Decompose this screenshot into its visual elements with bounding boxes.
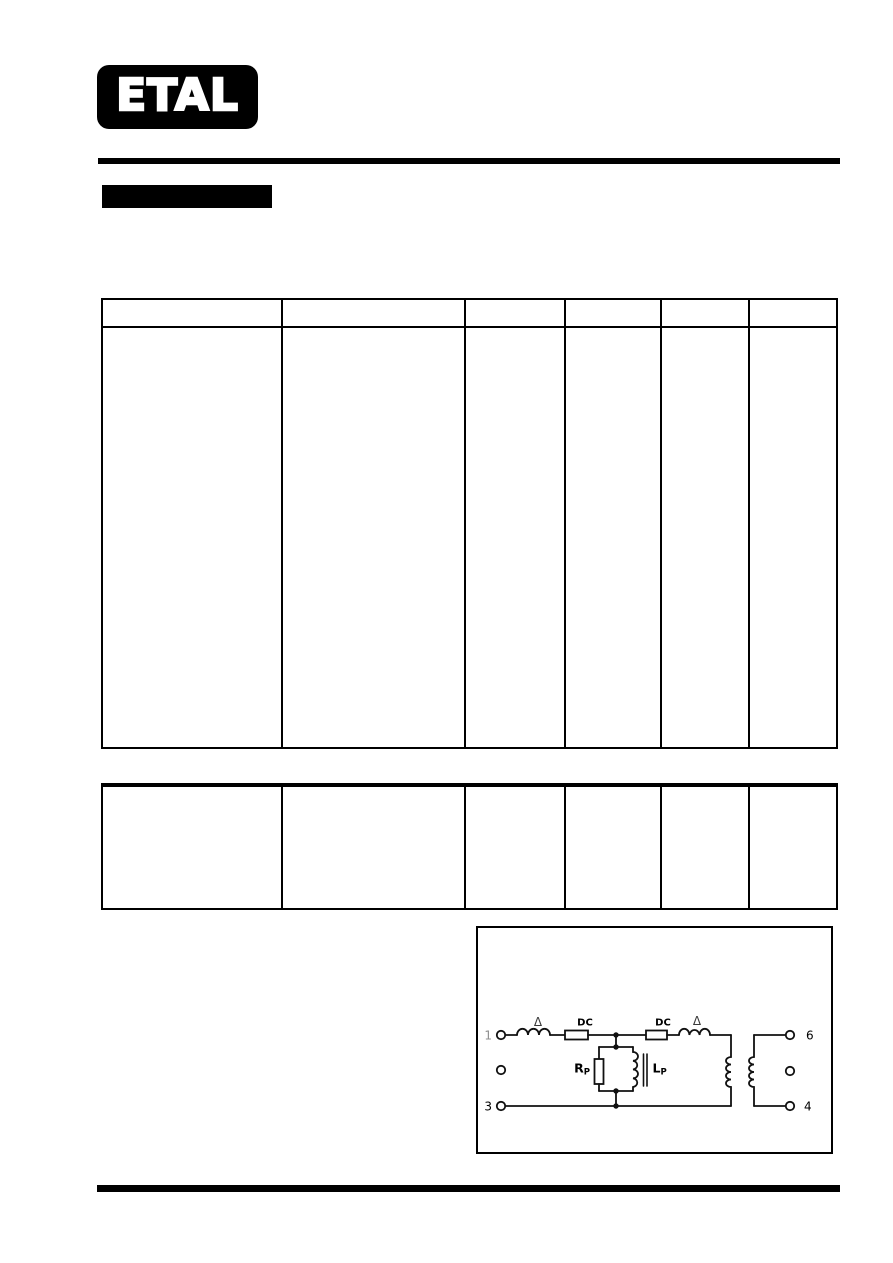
- spec-table-cell: [750, 328, 836, 747]
- spec-table-cell: [103, 328, 283, 747]
- junction-dot: [613, 1088, 618, 1093]
- junction-dot: [613, 1032, 618, 1037]
- rp-label: RP: [574, 1061, 590, 1078]
- spec-table-cell: [466, 328, 566, 747]
- notes-table-cell: [566, 787, 662, 908]
- delta-left-label: Δ: [534, 1015, 543, 1029]
- pin-2-terminal: [497, 1066, 505, 1074]
- pin-4-label: 4: [804, 1100, 812, 1114]
- pin-1-label: 1: [484, 1029, 492, 1043]
- pin-1-terminal: [497, 1031, 505, 1039]
- rp-resistor-box: [595, 1059, 604, 1084]
- delta-right-label: Δ: [693, 1014, 702, 1028]
- section-title-block: [102, 185, 272, 208]
- etal-logo-text: ETAL: [116, 74, 239, 118]
- bottom-rule: [97, 1185, 840, 1192]
- spec-table-cell: [662, 328, 750, 747]
- top-rule: [98, 158, 840, 164]
- notes-table-cell: [283, 787, 466, 908]
- spec-table-cell: [283, 328, 466, 747]
- spec-table-header-cell: [466, 300, 566, 328]
- notes-table-cell: [750, 787, 836, 908]
- pin-6-terminal: [786, 1031, 794, 1039]
- pin-3-terminal: [497, 1102, 505, 1110]
- spec-table-header-cell: [283, 300, 466, 328]
- spec-table-header-cell: [103, 300, 283, 328]
- pin-4-terminal: [786, 1102, 794, 1110]
- notes-table: [101, 783, 838, 910]
- secondary-winding: [749, 1035, 754, 1106]
- pin-6-label: 6: [806, 1029, 814, 1043]
- spec-table: [101, 298, 838, 749]
- spec-table-header-cell: [662, 300, 750, 328]
- notes-table-cell: [466, 787, 566, 908]
- dc-left-label: DC: [577, 1018, 593, 1029]
- dc-resistance-box-right: [646, 1031, 667, 1040]
- series-inductor-right: [679, 1029, 710, 1035]
- spec-table-header-cell: [750, 300, 836, 328]
- series-inductor-left: [517, 1029, 550, 1035]
- lp-inductor: [633, 1047, 638, 1091]
- etal-logo: ETAL: [97, 65, 258, 129]
- equivalent-circuit-diagram: 1 3 6 4 Δ Δ DC DC RP LP: [472, 922, 840, 1158]
- junction-dot: [613, 1103, 618, 1108]
- notes-table-cell: [662, 787, 750, 908]
- dc-right-label: DC: [655, 1018, 671, 1029]
- dc-resistance-box-left: [565, 1031, 588, 1040]
- core-lines: [644, 1054, 648, 1086]
- spec-table-header-cell: [566, 300, 662, 328]
- pin-3-label: 3: [484, 1100, 492, 1114]
- primary-winding: [726, 1035, 731, 1106]
- datasheet-page: ETAL: [0, 0, 893, 1263]
- pin-5-terminal: [786, 1067, 794, 1075]
- junction-dot: [613, 1044, 618, 1049]
- lp-label: LP: [653, 1061, 667, 1078]
- notes-table-cell: [103, 787, 283, 908]
- spec-table-cell: [566, 328, 662, 747]
